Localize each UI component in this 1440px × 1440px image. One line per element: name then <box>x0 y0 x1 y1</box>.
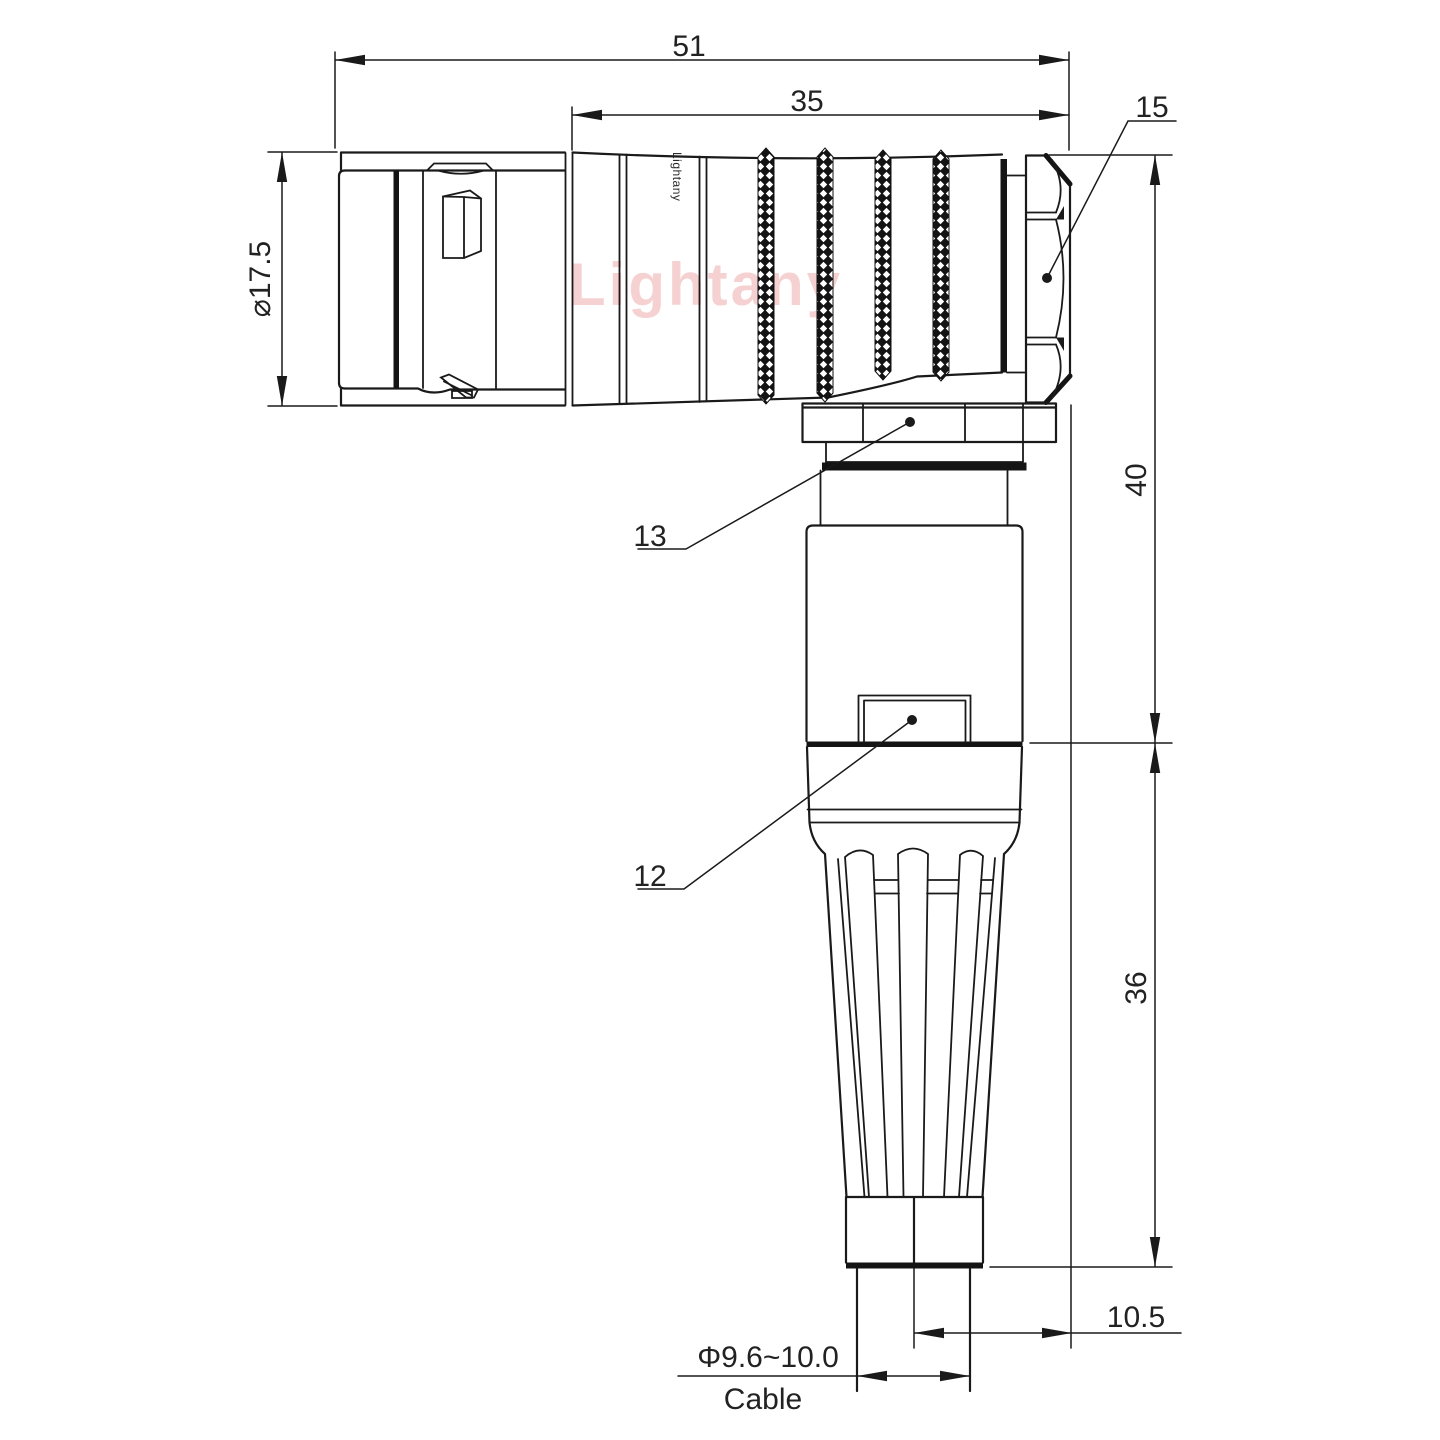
label-cable-clamp: 12 <box>633 860 666 893</box>
technical-drawing: Lightany Lightany <box>0 0 1440 1440</box>
o-ring <box>822 463 1027 471</box>
latch-window <box>443 191 481 259</box>
knurl-band <box>933 150 949 381</box>
nut-neck <box>1007 176 1026 373</box>
drawing-canvas: Lightany Lightany <box>0 0 1440 1440</box>
key-rib <box>341 153 565 406</box>
dim-body-diameter-value: ⌀17.5 <box>244 241 277 317</box>
housing-rear-seam <box>1001 159 1008 373</box>
gland-nut <box>803 404 1057 443</box>
cable-label: Cable <box>724 1383 802 1416</box>
dim-side-offset-value: 10.5 <box>1107 1301 1165 1334</box>
sleeve-seam <box>394 171 400 388</box>
dim-rear-length-value: 35 <box>790 85 823 118</box>
strain-relief-boot <box>807 747 1022 1197</box>
knurl-band <box>875 150 891 380</box>
clamp-body <box>807 526 1023 748</box>
label-hex-nut: 15 <box>1135 91 1168 124</box>
leader-coupling-nut: 13 <box>633 417 915 553</box>
dim-side-offset: 10.5 <box>914 1269 1181 1349</box>
dim-height-upper: 40 <box>1030 155 1172 743</box>
dim-rear-length: 35 <box>572 85 1069 150</box>
brand-mark: Lightany <box>670 152 684 201</box>
label-coupling-nut: 13 <box>633 520 666 553</box>
dim-body-diameter: ⌀17.5 <box>244 152 337 406</box>
plug-front-barrel <box>339 153 573 406</box>
dim-height-lower-value: 36 <box>1120 971 1153 1004</box>
dim-cable-diameter-value: Φ9.6~10.0 <box>697 1341 839 1374</box>
dim-overall-length: 51 <box>335 30 1069 150</box>
dim-overall-length-value: 51 <box>672 30 705 63</box>
knurl-band <box>758 148 774 404</box>
knurl-band <box>817 148 833 402</box>
dim-cable-diameter: Φ9.6~10.0 Cable <box>678 1341 970 1416</box>
release-latch <box>441 375 478 399</box>
cable-ferrule <box>846 1197 983 1269</box>
dim-height-upper-value: 40 <box>1120 463 1153 496</box>
